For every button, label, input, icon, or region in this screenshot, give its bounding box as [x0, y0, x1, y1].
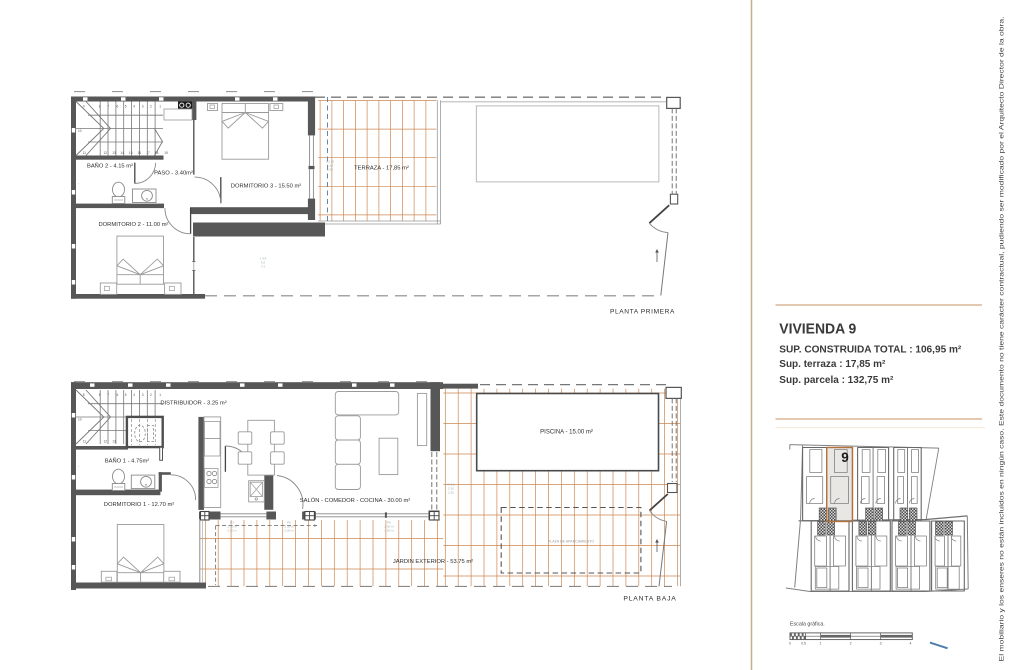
svg-text:3: 3: [142, 105, 144, 109]
svg-text:18: 18: [155, 151, 159, 155]
svg-text:14: 14: [121, 151, 125, 155]
svg-text:1: 1: [820, 641, 822, 645]
svg-text:0,5: 0,5: [801, 641, 806, 645]
svg-text:2.50: 2.50: [327, 168, 333, 172]
svg-text:8: 8: [99, 105, 101, 109]
svg-text:12: 12: [104, 440, 108, 444]
svg-text:9: 9: [83, 105, 85, 109]
svg-text:PISCINA - 15.00 m²: PISCINA - 15.00 m²: [540, 430, 593, 436]
svg-text:2.30 m: 2.30 m: [384, 529, 394, 533]
svg-text:9: 9: [841, 450, 849, 465]
svg-text:2.20: 2.20: [448, 491, 454, 495]
svg-text:DORMITORIO 3 - 15.50 m²: DORMITORIO 3 - 15.50 m²: [231, 184, 302, 190]
svg-text:0: 0: [789, 641, 791, 645]
svg-text:El mobiliario y los enseres no: El mobiliario y los enseres no están inc…: [999, 16, 1006, 661]
svg-text:17: 17: [146, 151, 150, 155]
svg-text:4: 4: [133, 393, 135, 397]
svg-text:PLAZA DE APARCAMIENTO: PLAZA DE APARCAMIENTO: [548, 540, 595, 544]
svg-text:2.20 m: 2.20 m: [227, 529, 237, 533]
svg-text:8: 8: [99, 393, 101, 397]
svg-text:2: 2: [850, 641, 852, 645]
svg-text:BAÑO 1 - 4.75m²: BAÑO 1 - 4.75m²: [105, 458, 150, 465]
svg-text:4: 4: [133, 105, 135, 109]
svg-text:Sup. parcela : 132,75 m²: Sup. parcela : 132,75 m²: [779, 375, 894, 386]
svg-text:13: 13: [112, 151, 116, 155]
svg-text:7.2: 7.2: [261, 265, 266, 269]
svg-text:7: 7: [107, 393, 109, 397]
svg-text:6: 6: [117, 393, 119, 397]
svg-text:2: 2: [150, 393, 152, 397]
svg-text:DISTRIBUIDOR - 3.25 m²: DISTRIBUIDOR - 3.25 m²: [160, 400, 226, 406]
svg-text:13: 13: [112, 440, 116, 444]
svg-text:7: 7: [107, 105, 109, 109]
svg-text:SUP. CONSTRUIDA TOTAL : 106,95: SUP. CONSTRUIDA TOTAL : 106,95 m²: [779, 344, 962, 355]
svg-text:3: 3: [880, 641, 882, 645]
svg-text:PLANTA PRIMERA: PLANTA PRIMERA: [610, 309, 675, 316]
svg-text:PLANTA BAJA: PLANTA BAJA: [623, 596, 676, 603]
svg-text:2: 2: [150, 105, 152, 109]
svg-text:5: 5: [125, 105, 127, 109]
svg-text:BAÑO 2 - 4.15 m²: BAÑO 2 - 4.15 m²: [87, 163, 133, 170]
svg-text:10: 10: [78, 129, 82, 133]
svg-text:JARDIN EXTERIOR - 53.75 m²: JARDIN EXTERIOR - 53.75 m²: [393, 559, 473, 565]
svg-text:15: 15: [129, 151, 133, 155]
svg-text:1: 1: [159, 105, 161, 109]
svg-text:4: 4: [910, 641, 912, 645]
svg-text:19: 19: [164, 151, 168, 155]
svg-text:Escala gráfica.: Escala gráfica.: [790, 621, 825, 627]
svg-text:12: 12: [104, 151, 108, 155]
svg-text:Sup. terraza : 17,85 m²: Sup. terraza : 17,85 m²: [779, 359, 886, 370]
svg-text:PASO - 3.40m²: PASO - 3.40m²: [154, 170, 193, 176]
svg-text:DORMITORIO 2 - 11.00 m²: DORMITORIO 2 - 11.00 m²: [98, 222, 168, 228]
svg-text:11: 11: [83, 440, 87, 444]
svg-text:5: 5: [125, 393, 127, 397]
svg-text:SALÓN - COMEDOR - COCINA - 30.: SALÓN - COMEDOR - COCINA - 30.00 m²: [300, 497, 411, 504]
svg-text:10: 10: [78, 417, 82, 421]
svg-text:1: 1: [159, 393, 161, 397]
svg-text:6: 6: [117, 105, 119, 109]
svg-text:2.20 m: 2.20 m: [284, 529, 294, 533]
svg-text:TERRAZA - 17,85 m²: TERRAZA - 17,85 m²: [354, 166, 409, 172]
svg-text:3: 3: [142, 393, 144, 397]
svg-text:VIVIENDA 9: VIVIENDA 9: [779, 321, 856, 338]
svg-text:16: 16: [138, 151, 142, 155]
svg-text:8: 8: [83, 393, 85, 397]
svg-text:11: 11: [83, 151, 87, 155]
svg-text:DORMITORIO 1 - 12.70 m²: DORMITORIO 1 - 12.70 m²: [104, 502, 175, 508]
